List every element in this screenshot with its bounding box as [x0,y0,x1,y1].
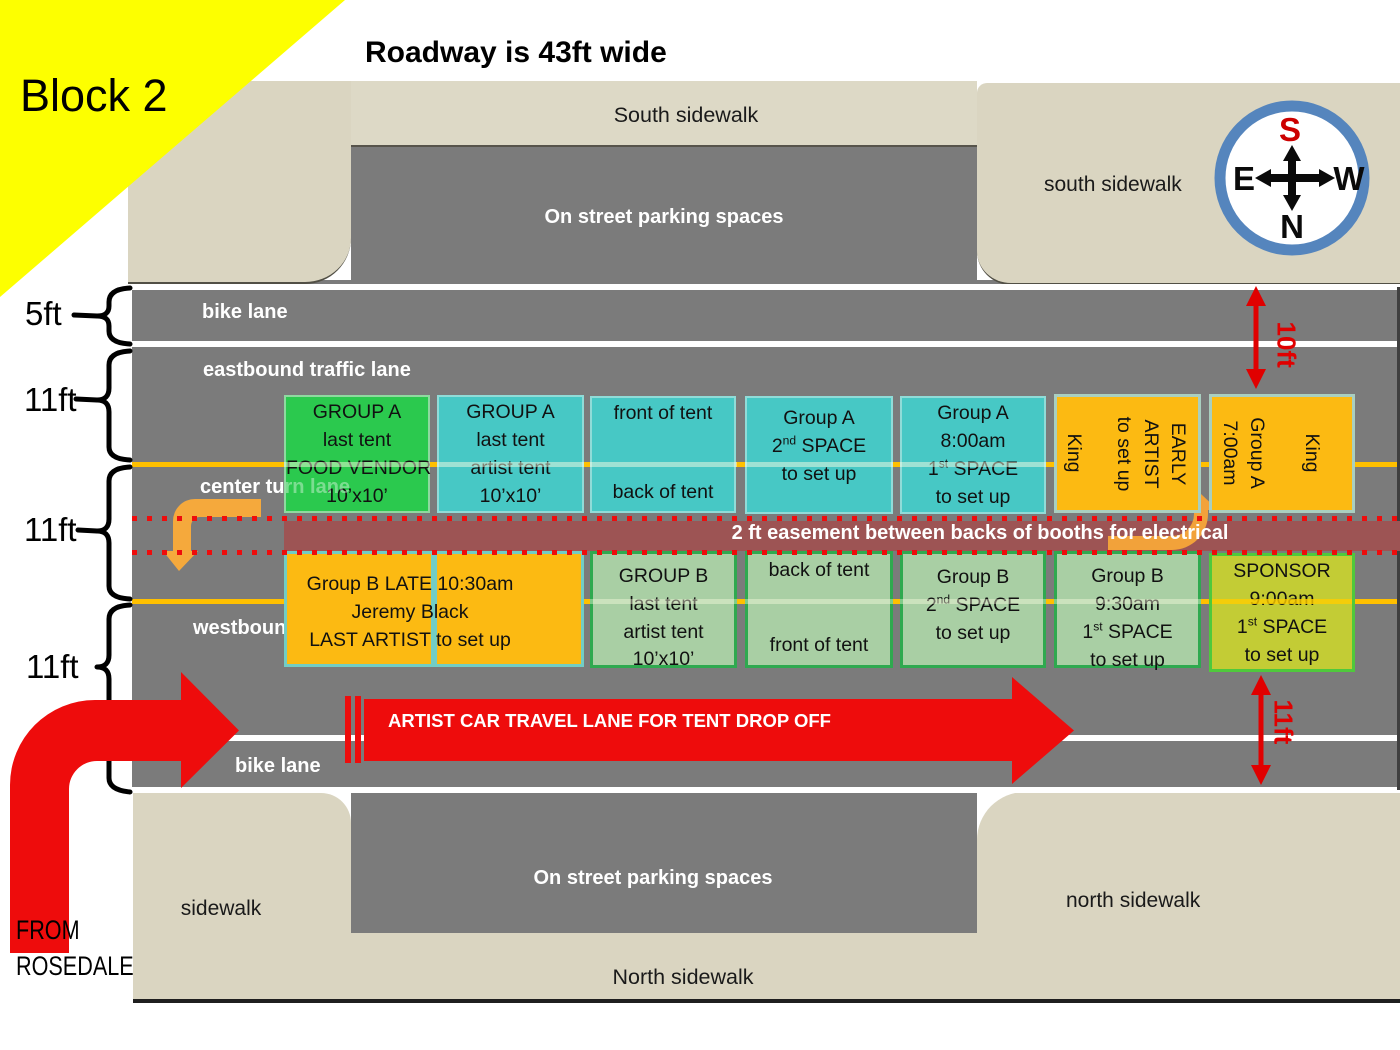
svg-text:S: S [1279,111,1301,148]
svg-text:W: W [1333,160,1365,197]
svg-text:E: E [1233,160,1255,197]
svg-text:N: N [1280,208,1304,245]
